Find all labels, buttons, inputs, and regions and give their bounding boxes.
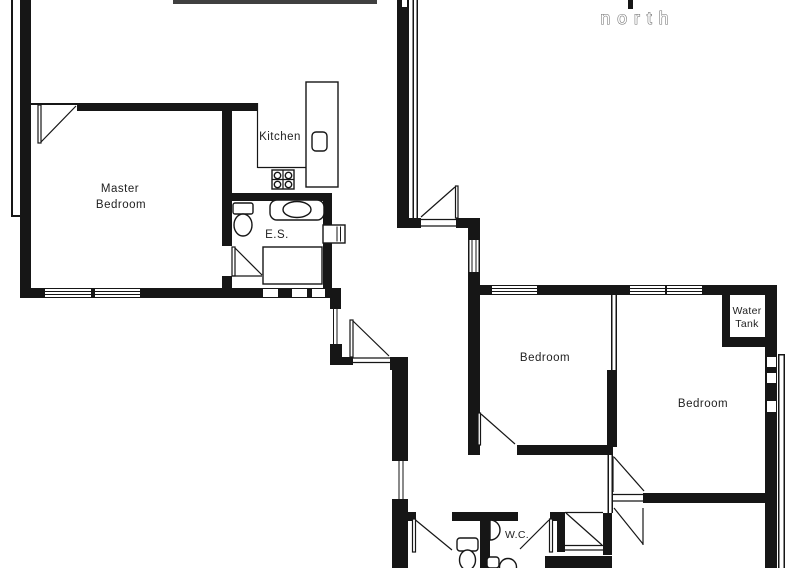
floor-plan-page: north Master Bedroom Kitchen E.S. Bedroo… — [0, 0, 800, 568]
door-leaf — [478, 413, 481, 445]
door-leaf — [550, 519, 553, 552]
window — [667, 286, 702, 294]
wc-label: W.C. — [505, 529, 529, 541]
wall-segment — [390, 357, 408, 370]
duct-shaft — [323, 225, 345, 243]
wall-segment — [222, 276, 232, 290]
water-tank-label: Tank — [735, 318, 759, 330]
shower-tray — [263, 247, 322, 284]
wall-segment — [77, 103, 225, 111]
window — [396, 461, 407, 499]
toilet-cistern-icon — [487, 557, 499, 568]
wall-segment — [323, 243, 332, 290]
wall-segment — [456, 218, 480, 228]
partition-line — [608, 455, 610, 513]
wall-segment — [517, 445, 613, 455]
vent — [292, 289, 307, 297]
wall-segment — [397, 0, 409, 218]
wall-segment — [397, 218, 421, 228]
wall-segment — [452, 512, 480, 521]
top-wall-cut — [173, 0, 377, 4]
wall-segment — [557, 512, 565, 552]
wall-segment — [11, 215, 20, 217]
door-leaf — [232, 247, 235, 276]
wall-segment — [225, 103, 257, 111]
door-leaf — [413, 519, 416, 552]
toilet-cistern-icon — [457, 538, 478, 551]
wall-segment — [784, 354, 786, 568]
kitchen-label: Kitchen — [259, 131, 301, 143]
wall-segment — [392, 370, 408, 461]
floor-plan-canvas: north Master Bedroom Kitchen E.S. Bedroo… — [0, 0, 800, 568]
master-bedroom-label: Bedroom — [96, 199, 146, 211]
partition-line — [616, 295, 618, 372]
door-leaf — [350, 320, 353, 357]
toilet-bowl-icon — [460, 550, 476, 568]
north-label: north — [601, 8, 676, 28]
door-leaf — [456, 186, 459, 218]
window — [470, 240, 479, 272]
wall-segment — [765, 285, 777, 568]
window — [45, 289, 91, 297]
wall-segment — [392, 499, 408, 568]
toilet-bowl-icon — [234, 214, 252, 236]
wall-segment — [330, 357, 353, 365]
wall-segment — [778, 354, 780, 568]
wall-segment — [417, 0, 419, 218]
vent — [767, 401, 776, 412]
wall-segment — [20, 0, 31, 298]
vent — [767, 373, 776, 383]
door-leaf — [38, 105, 41, 143]
vent — [312, 289, 325, 297]
wall-segment — [11, 0, 13, 217]
window — [95, 289, 140, 297]
wall-segment — [603, 513, 612, 555]
partition-line — [611, 295, 613, 372]
ensuite-label: E.S. — [265, 229, 289, 241]
toilet-cistern-icon — [233, 203, 253, 214]
bedroom-1-label: Bedroom — [520, 352, 570, 364]
window — [630, 286, 665, 294]
wall-segment — [490, 512, 518, 521]
door-notch — [402, 0, 407, 7]
wall-segment — [607, 370, 617, 447]
master-bedroom-label: Master — [101, 183, 139, 195]
vent — [263, 289, 278, 297]
wall-segment — [643, 493, 777, 503]
vent — [767, 357, 776, 367]
wall-segment — [545, 556, 612, 568]
wall-segment — [413, 0, 415, 218]
kitchen-counter — [306, 82, 338, 187]
water-tank-label: Water — [732, 305, 761, 317]
wall-segment — [222, 103, 232, 246]
bedroom-2-label: Bedroom — [678, 398, 728, 410]
window — [492, 286, 537, 294]
wall-segment — [330, 295, 341, 309]
window — [331, 309, 340, 344]
